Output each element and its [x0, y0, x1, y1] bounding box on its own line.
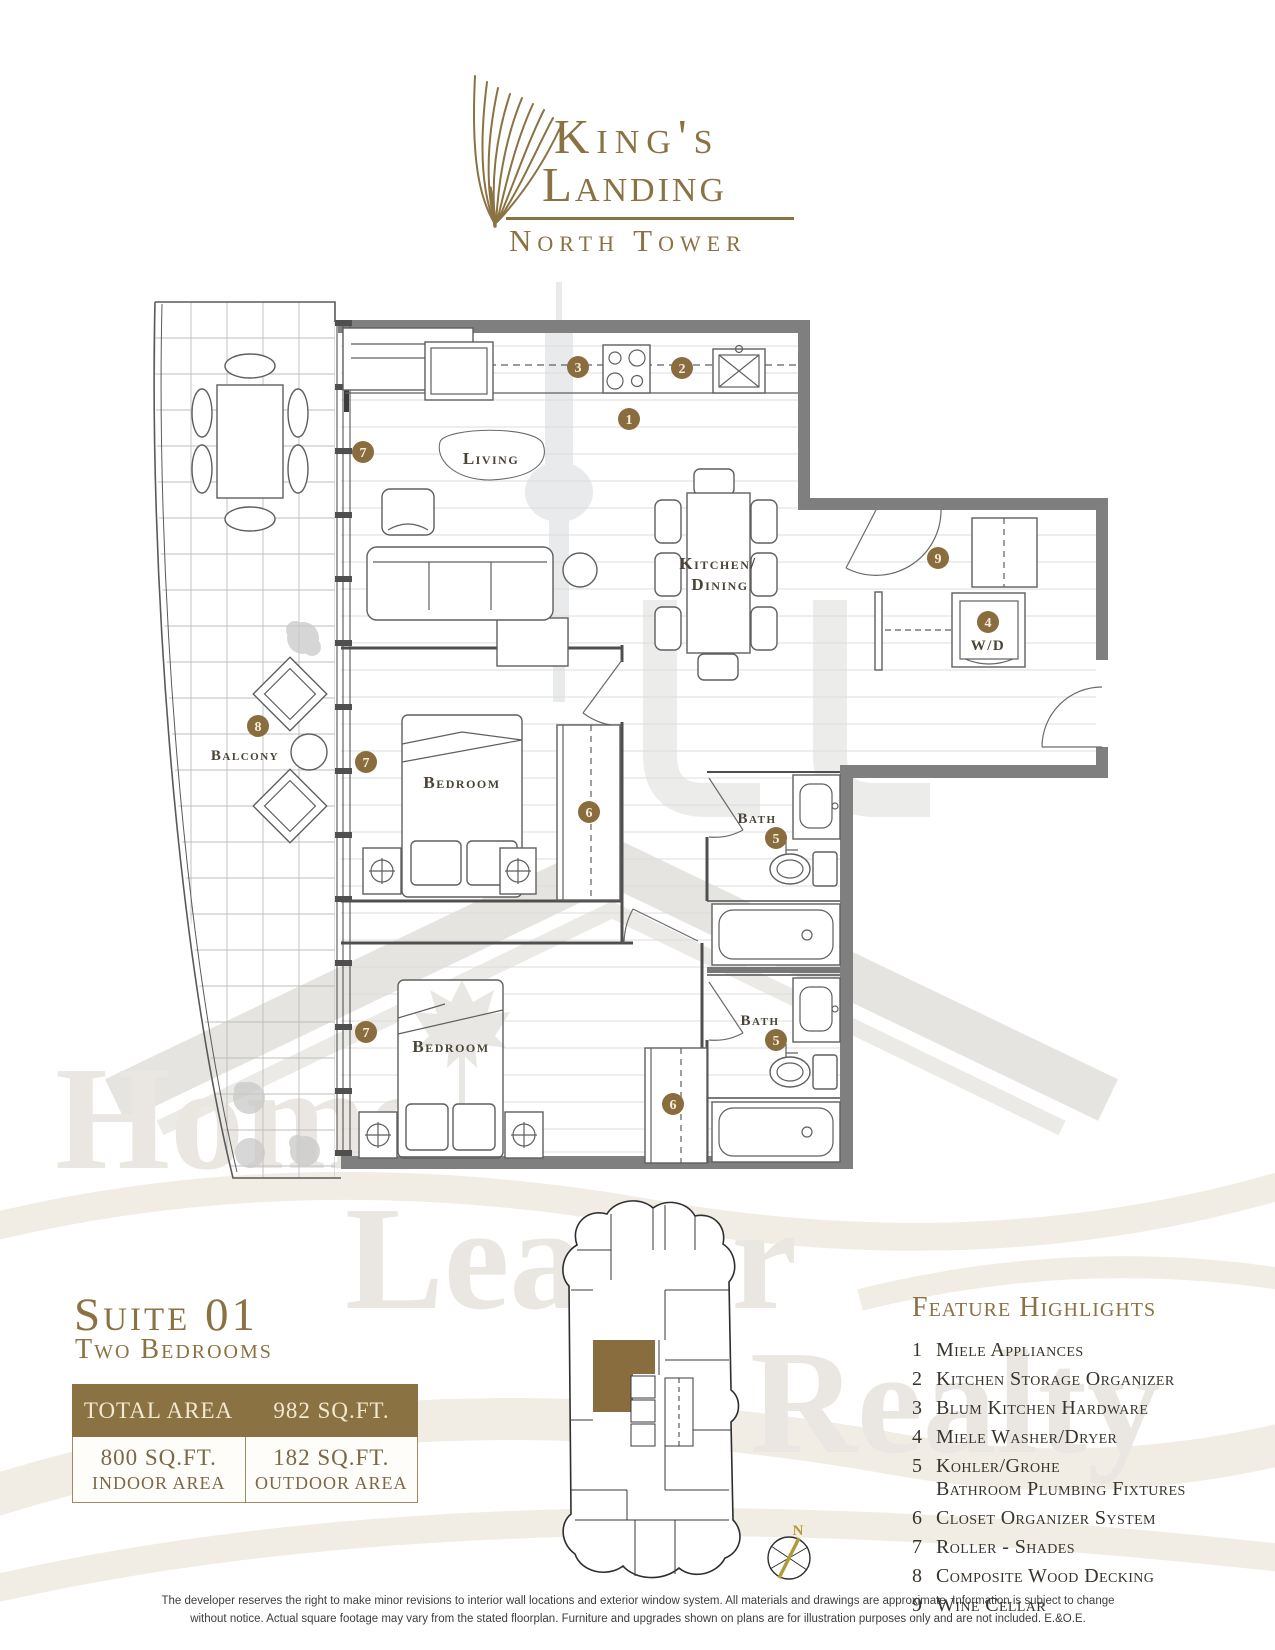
bath1-toilet	[770, 852, 837, 886]
marker-miele-appliances: 1	[618, 408, 640, 430]
bedroom1-label: Bedroom	[423, 773, 500, 792]
entry-door	[1042, 687, 1102, 747]
key-plan: N	[515, 1190, 815, 1590]
area-table-body: 800 SQ.FT. INDOOR AREA 182 SQ.FT. OUTDOO…	[72, 1437, 418, 1503]
kitchen-door	[846, 510, 941, 575]
kitchen-label-line2: Dining	[691, 575, 748, 594]
balcony-area	[154, 302, 341, 1178]
feature-text: Closet Organizer System	[936, 1507, 1156, 1530]
feature-item: 2 Kitchen Storage Organizer	[912, 1368, 1257, 1391]
total-area-value: 982 SQ.FT.	[245, 1398, 418, 1424]
feature-num: 7	[912, 1536, 936, 1559]
feature-text-line2: Bathroom Plumbing Fixtures	[936, 1478, 1186, 1500]
living-furniture	[367, 489, 553, 620]
fridge	[425, 342, 493, 400]
feature-num: 5	[912, 1455, 936, 1501]
svg-text:7: 7	[360, 446, 367, 461]
marker-roller-shade-bed2: 7	[355, 1021, 377, 1043]
feature-item: 6 Closet Organizer System	[912, 1507, 1257, 1530]
suite-subtitle: Two Bedrooms	[75, 1334, 273, 1366]
bath1-label: Bath	[737, 811, 776, 827]
floor-plan: .room { font-size:17px; letter-spacing:1…	[145, 292, 1110, 1182]
feature-text: Kitchen Storage Organizer	[936, 1368, 1175, 1391]
disclaimer: The developer reserves the right to make…	[58, 1593, 1218, 1629]
svg-text:2: 2	[679, 362, 686, 377]
floorplan-sheet: { "logo": { "name_line1": "King's", "nam…	[0, 0, 1275, 1650]
marker-bath1-plumbing: 5	[765, 827, 787, 849]
svg-text:7: 7	[363, 756, 370, 771]
svg-text:6: 6	[586, 806, 593, 821]
svg-text:3: 3	[575, 361, 582, 376]
marker-storage-organizer: 2	[671, 357, 693, 379]
feature-item: 7 Roller - Shades	[912, 1536, 1257, 1559]
feature-num: 3	[912, 1397, 936, 1420]
marker-closet2: 6	[662, 1093, 684, 1115]
disclaimer-line1: The developer reserves the right to make…	[58, 1593, 1218, 1611]
feature-num: 2	[912, 1368, 936, 1391]
bath1-fixtures	[712, 775, 840, 965]
bedroom2-door	[624, 909, 698, 943]
bath2-toilet	[770, 1055, 837, 1089]
marker-blum-hardware: 3	[567, 356, 589, 378]
bath2-tub	[712, 1102, 840, 1162]
feature-text: Kohler/Grohe	[936, 1455, 1060, 1477]
svg-text:6: 6	[670, 1098, 677, 1113]
marker-wood-decking: 8	[247, 715, 269, 737]
kitchen-label-line1: Kitchen/	[679, 554, 756, 573]
compass: N	[768, 1523, 810, 1579]
feature-num: 4	[912, 1426, 936, 1449]
kitchen-island	[497, 618, 568, 666]
bath1-tub	[712, 904, 840, 965]
feature-highlights-title: Feature Highlights	[912, 1292, 1257, 1324]
feature-item: 3 Blum Kitchen Hardware	[912, 1397, 1257, 1420]
logo-rule	[506, 217, 794, 220]
svg-text:4: 4	[985, 616, 992, 631]
bedroom2-label: Bedroom	[412, 1037, 489, 1056]
kitchen-sink	[713, 346, 765, 394]
svg-text:9: 9	[935, 552, 942, 567]
svg-text:1: 1	[626, 413, 633, 428]
svg-text:7: 7	[363, 1026, 370, 1041]
bath2-label: Bath	[740, 1013, 779, 1029]
marker-wine-cellar: 9	[927, 547, 949, 569]
svg-text:8: 8	[255, 720, 262, 735]
indoor-area-value: 800 SQ.FT.	[73, 1445, 245, 1471]
outdoor-area-label: OUTDOOR AREA	[246, 1473, 418, 1494]
marker-roller-shade-living: 7	[352, 441, 374, 463]
feature-text: Roller - Shades	[936, 1536, 1075, 1559]
outdoor-area-cell: 182 SQ.FT. OUTDOOR AREA	[245, 1437, 418, 1502]
feature-num: 8	[912, 1565, 936, 1588]
indoor-area-cell: 800 SQ.FT. INDOOR AREA	[73, 1437, 245, 1502]
bath1-door	[709, 778, 743, 837]
feature-text: Composite Wood Decking	[936, 1565, 1154, 1588]
marker-bath2-plumbing: 5	[765, 1029, 787, 1051]
logo: King's Landing North Tower	[455, 45, 835, 260]
svg-text:5: 5	[773, 1034, 780, 1049]
feature-item: 4 Miele Washer/Dryer	[912, 1426, 1257, 1449]
outdoor-area-value: 182 SQ.FT.	[246, 1445, 418, 1471]
sofa	[367, 547, 553, 620]
window-wall	[335, 320, 352, 1156]
bath2-fixtures	[712, 978, 840, 1162]
living-label: Living	[439, 430, 544, 480]
compass-north-label: N	[793, 1523, 804, 1539]
bath2-door	[709, 982, 743, 1040]
feature-text: Blum Kitchen Hardware	[936, 1397, 1148, 1420]
logo-title-line2: Landing	[542, 156, 727, 213]
feature-num: 1	[912, 1339, 936, 1362]
feature-item: 5 Kohler/Grohe Bathroom Plumbing Fixture…	[912, 1455, 1257, 1501]
area-table-header: TOTAL AREA 982 SQ.FT.	[72, 1384, 418, 1437]
feature-text: Miele Appliances	[936, 1339, 1084, 1362]
area-table: TOTAL AREA 982 SQ.FT. 800 SQ.FT. INDOOR …	[72, 1384, 418, 1503]
marker-roller-shade-bed1: 7	[355, 751, 377, 773]
feature-item: 1 Miele Appliances	[912, 1339, 1257, 1362]
balcony-label: Balcony	[211, 748, 279, 764]
indoor-area-label: INDOOR AREA	[73, 1473, 245, 1494]
side-table	[563, 553, 597, 587]
entry-corridor	[875, 518, 1037, 670]
disclaimer-line2: without notice. Actual square footage ma…	[58, 1611, 1218, 1629]
svg-text:Living: Living	[463, 449, 519, 468]
feature-highlights: Feature Highlights 1 Miele Appliances 2 …	[912, 1292, 1257, 1623]
compass-needle	[779, 1538, 799, 1578]
feature-item: 8 Composite Wood Decking	[912, 1565, 1257, 1588]
feature-highlights-list: 1 Miele Appliances 2 Kitchen Storage Org…	[912, 1339, 1257, 1617]
svg-text:5: 5	[773, 832, 780, 847]
wd-label: W/D	[971, 638, 1006, 654]
balcony-dining-set	[192, 354, 308, 531]
total-area-label: TOTAL AREA	[72, 1398, 245, 1424]
feature-num: 6	[912, 1507, 936, 1530]
stove	[603, 345, 650, 393]
marker-closet1: 6	[578, 801, 600, 823]
logo-subtitle: North Tower	[509, 223, 747, 259]
marker-washer-dryer: 4	[977, 611, 999, 633]
feature-text: Miele Washer/Dryer	[936, 1426, 1117, 1449]
armchair	[382, 489, 434, 535]
